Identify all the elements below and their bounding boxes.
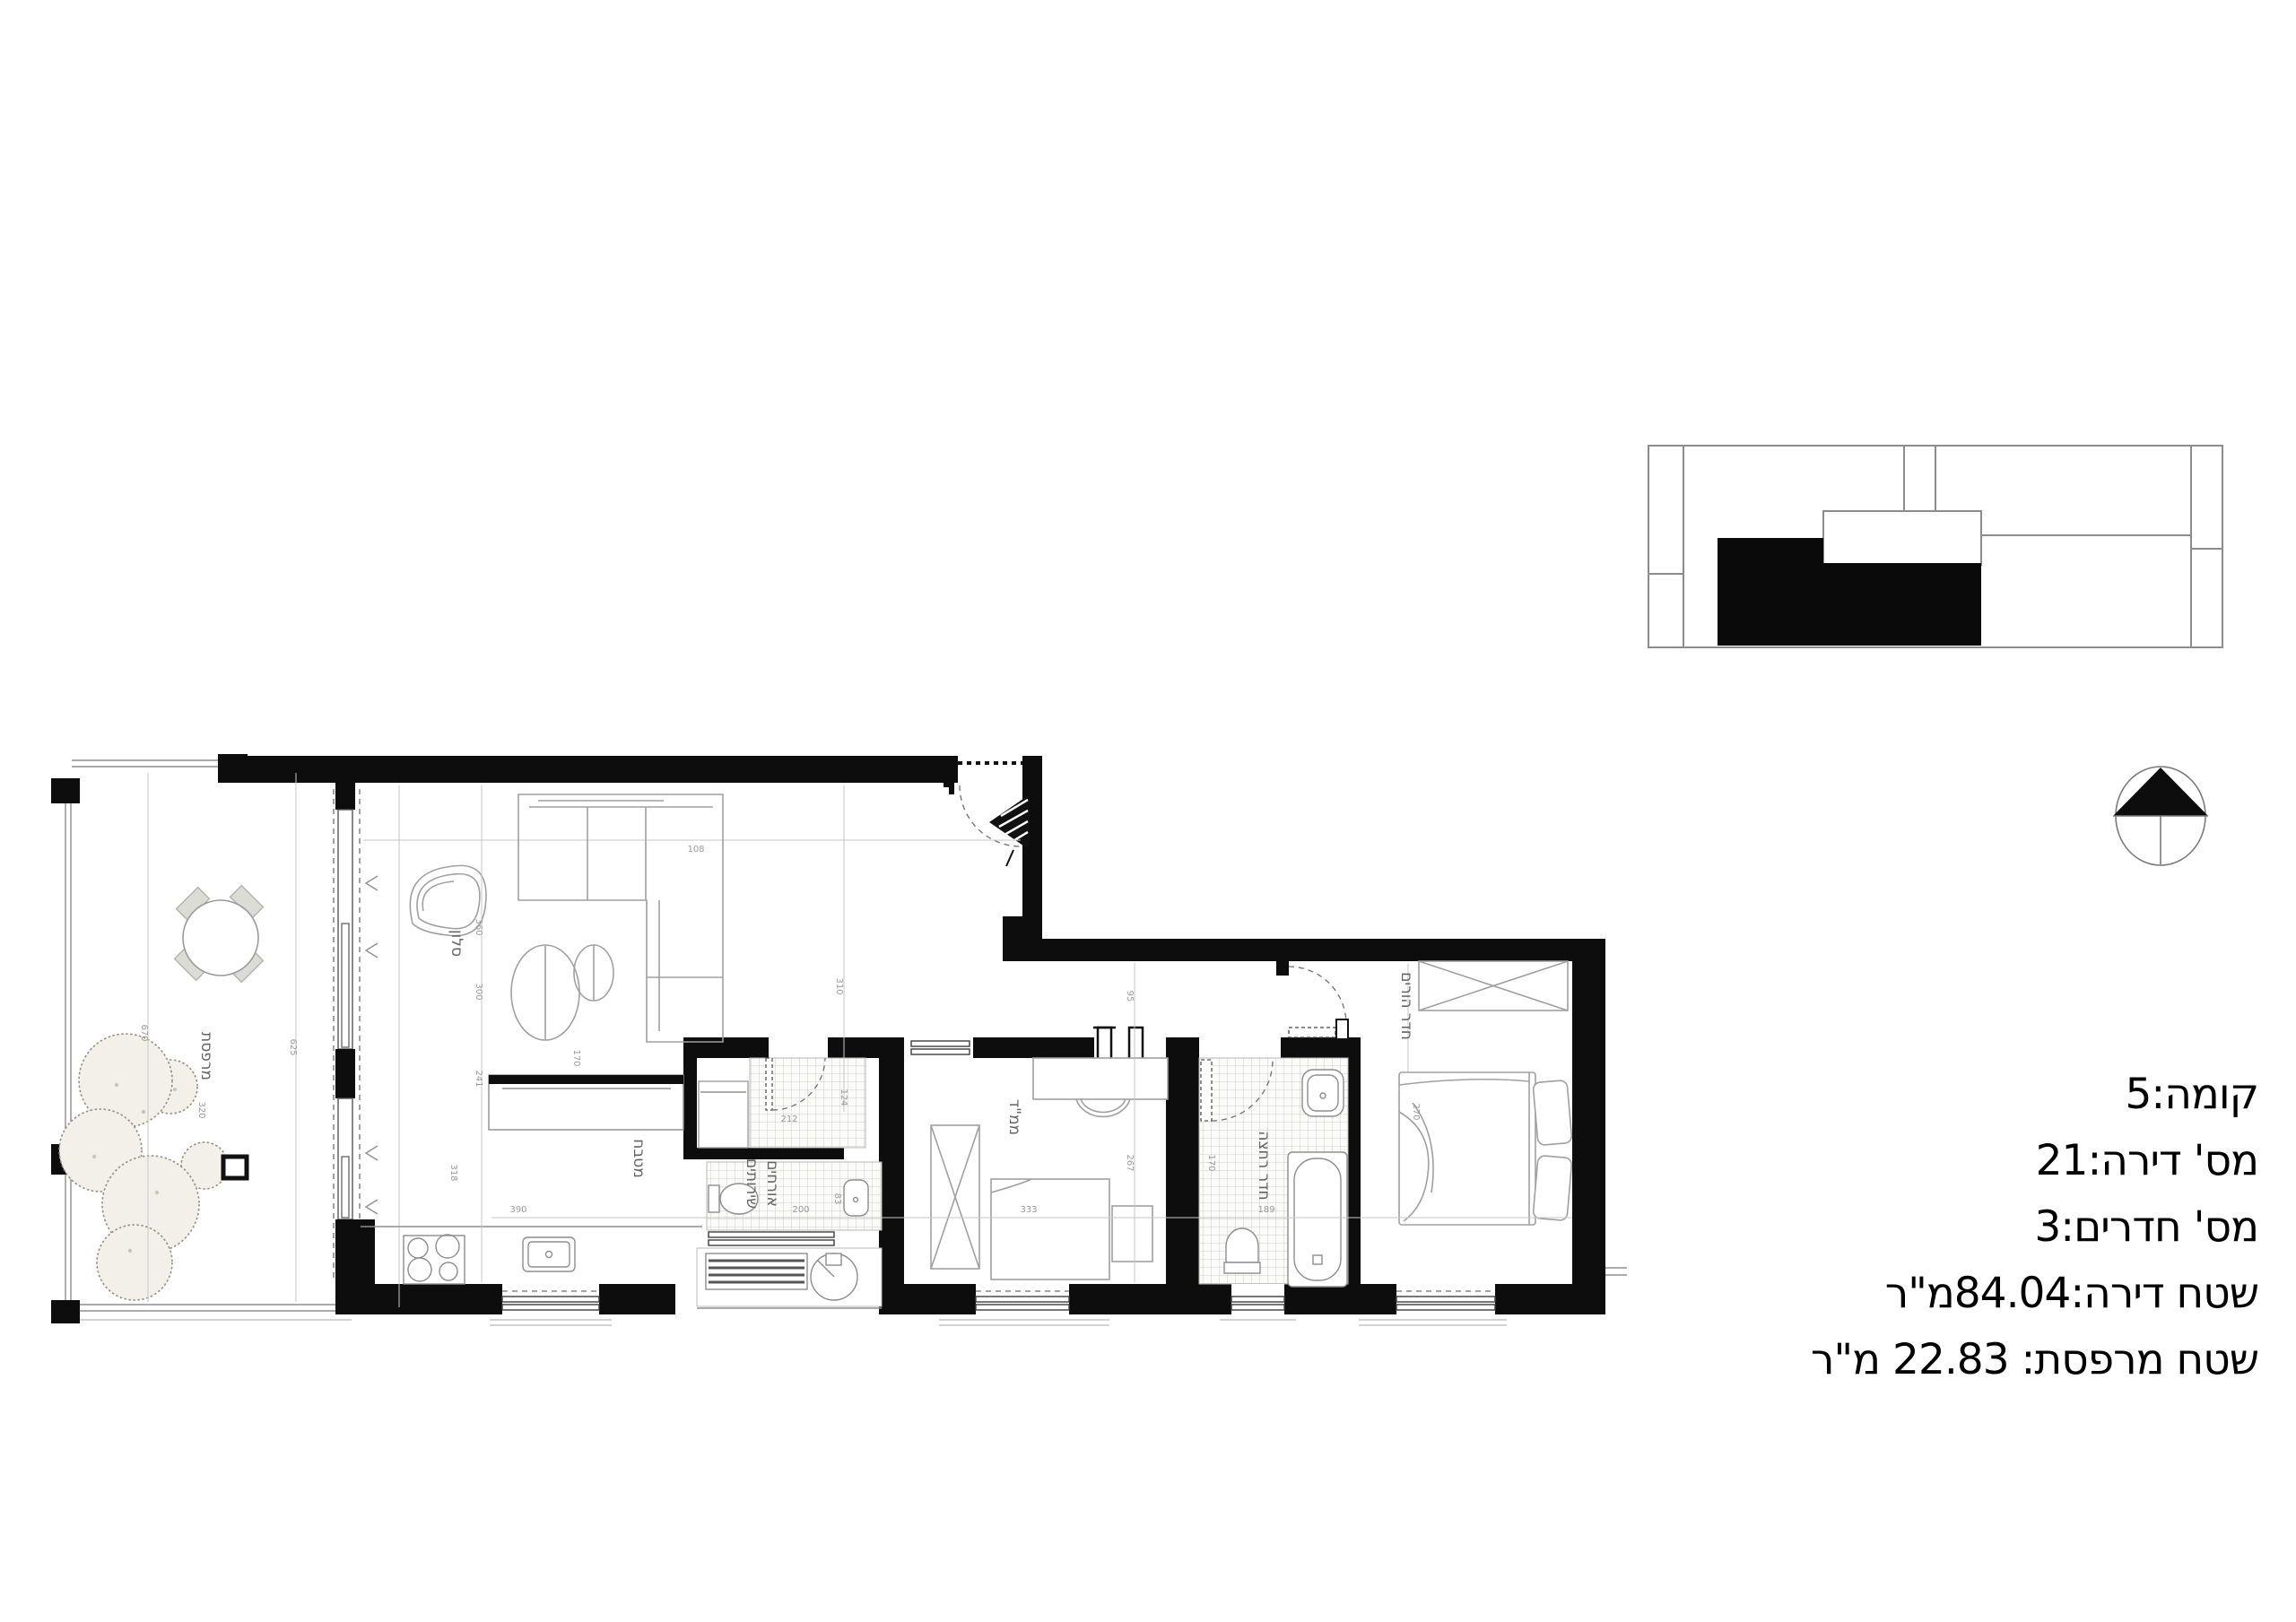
wall-mamad-west bbox=[879, 1037, 904, 1314]
dim-hall: 95 bbox=[1125, 991, 1135, 1002]
dim-coffee-table: 170 bbox=[571, 1049, 581, 1066]
label-safe-room: ממ"ד bbox=[1005, 1099, 1023, 1135]
walls bbox=[218, 754, 1605, 1314]
info-floor: קומה:5 bbox=[1811, 1062, 2258, 1128]
label-kitchen: מטבח bbox=[630, 1139, 648, 1178]
dim-balcony-left: 670 bbox=[139, 1024, 149, 1041]
info-apartment-number: מס' דירה:21 bbox=[1811, 1128, 2258, 1194]
info-balcony-area: שטח מרפסת: 22.83 מ"ר bbox=[1811, 1327, 2258, 1393]
floorplan-page: 670 625 320 360 300 241 318 390 170 108 … bbox=[0, 0, 2296, 1622]
dim-living-a: 360 bbox=[474, 918, 483, 935]
kitchen-sink bbox=[523, 1237, 575, 1271]
pillow bbox=[1533, 1080, 1572, 1145]
dim-mamad-w: 333 bbox=[1020, 1205, 1037, 1215]
coffee-tables bbox=[511, 945, 613, 1040]
bedroom-door bbox=[1289, 967, 1348, 1039]
mamad-closet bbox=[931, 1125, 979, 1269]
sliding-door-upper bbox=[338, 810, 352, 1049]
bathroom bbox=[1199, 1058, 1348, 1287]
guest-wet-rooms bbox=[697, 1058, 882, 1308]
bathroom-sink bbox=[1302, 1070, 1344, 1116]
service-balcony bbox=[697, 1248, 882, 1308]
guest-sink bbox=[844, 1180, 868, 1216]
key-plan-highlight bbox=[1823, 563, 1981, 646]
sofa bbox=[518, 794, 723, 1042]
balcony-dining-set bbox=[175, 886, 264, 983]
dim-bedroom-w: 270 bbox=[1411, 1103, 1421, 1120]
wall-top bbox=[218, 756, 958, 783]
round-table bbox=[183, 900, 258, 976]
dim-balcony-right: 625 bbox=[288, 1038, 298, 1055]
wall-east bbox=[1572, 939, 1605, 1314]
label-master-bedroom: חדר הורים bbox=[1397, 972, 1415, 1040]
balcony-post bbox=[51, 778, 80, 803]
kitchen bbox=[361, 1075, 702, 1284]
floor-drain bbox=[223, 1157, 247, 1178]
mamad-vent-window bbox=[908, 1037, 973, 1058]
mamad-bed bbox=[991, 1179, 1152, 1279]
wall-mamad-north bbox=[973, 1037, 1094, 1058]
dim-living-c: 241 bbox=[474, 1070, 483, 1087]
north-arrow-icon bbox=[2113, 767, 2208, 865]
key-plan-highlight bbox=[1718, 538, 1823, 646]
bathtub bbox=[1288, 1152, 1347, 1287]
wall-mamad-east bbox=[1166, 1037, 1199, 1314]
info-rooms-count: מס' חדרים:3 bbox=[1811, 1194, 2258, 1261]
label-guest-wc-2: אורחים bbox=[763, 1160, 781, 1207]
label-balcony: מרפסת bbox=[197, 1032, 215, 1080]
window-living bbox=[490, 1284, 612, 1325]
stove bbox=[404, 1235, 465, 1284]
dim-balcony-width: 320 bbox=[196, 1101, 206, 1118]
dim-wc-sink: 83 bbox=[832, 1193, 842, 1205]
dim-living-b: 300 bbox=[474, 983, 483, 1000]
water-heater bbox=[811, 1253, 857, 1300]
dim-wc-w: 200 bbox=[792, 1205, 809, 1215]
dim-sofa: 108 bbox=[687, 845, 704, 854]
dim-shower-d: 124 bbox=[839, 1089, 848, 1106]
info-apartment-area: שטח דירה:84.04מ"ר bbox=[1811, 1261, 2258, 1327]
dim-shower-w: 212 bbox=[780, 1115, 797, 1124]
label-bathroom: חדר רחצה bbox=[1255, 1131, 1273, 1200]
key-plan bbox=[1648, 446, 2222, 647]
dim-bath-l: 189 bbox=[1257, 1205, 1274, 1215]
pillow bbox=[1533, 1155, 1572, 1220]
bathroom-toilet bbox=[1224, 1228, 1260, 1273]
label-guest-wc-1: שירותים bbox=[743, 1158, 761, 1209]
double-bed bbox=[1399, 1072, 1572, 1225]
mamad-desk bbox=[1033, 1058, 1168, 1116]
info-panel: קומה:5 מס' דירה:21 מס' חדרים:3 שטח דירה:… bbox=[1811, 1062, 2258, 1393]
dim-kitchen: 390 bbox=[509, 1205, 526, 1215]
shower-door-leaf bbox=[766, 1058, 772, 1110]
wall-corridor-top bbox=[1003, 939, 1605, 961]
balcony-post bbox=[51, 1300, 80, 1323]
opening-direction-icons bbox=[366, 876, 378, 1214]
shower-cabinet bbox=[699, 1081, 748, 1148]
label-living: סלון bbox=[448, 930, 465, 957]
dim-living-depth: 310 bbox=[834, 977, 844, 994]
sliding-door-lower bbox=[338, 1098, 352, 1219]
wardrobe bbox=[1419, 961, 1568, 1010]
dim-mamad-d: 267 bbox=[1125, 1154, 1135, 1171]
dim-living-d: 318 bbox=[448, 1164, 458, 1181]
wc-window bbox=[709, 1232, 834, 1237]
bathroom-door-leaf bbox=[1201, 1060, 1212, 1121]
wall-bath-east bbox=[1348, 1037, 1361, 1314]
dim-bath-w: 170 bbox=[1206, 1154, 1216, 1171]
